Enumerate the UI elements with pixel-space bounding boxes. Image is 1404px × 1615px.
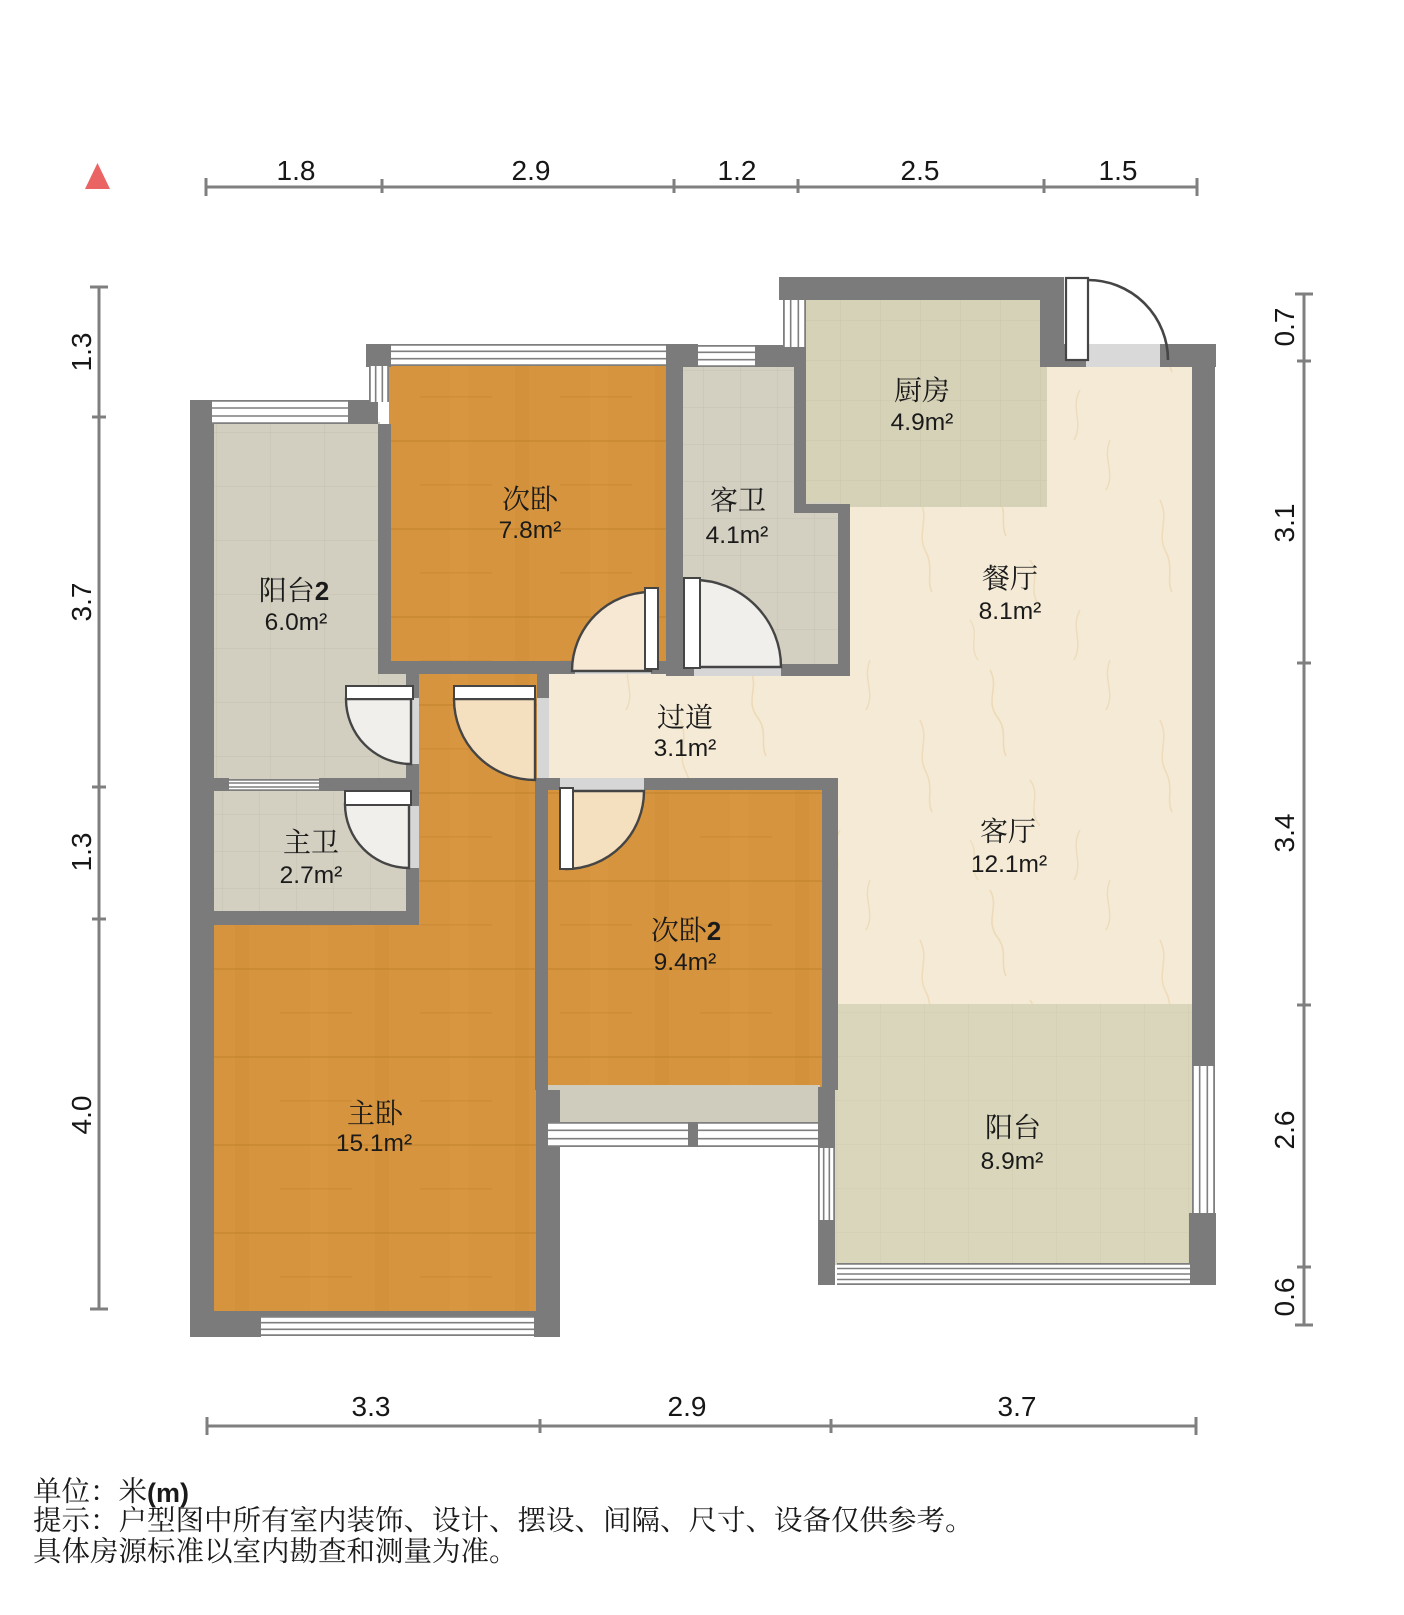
svg-text:4.0: 4.0 [66,1096,97,1135]
svg-text:3.4: 3.4 [1269,814,1300,853]
svg-text:2: 2 [707,916,721,946]
svg-text:1.3: 1.3 [66,833,97,872]
svg-text:2.9: 2.9 [512,155,551,186]
svg-text:1.8: 1.8 [277,155,316,186]
svg-text:2.5: 2.5 [901,155,940,186]
svg-text:0.7: 0.7 [1269,308,1300,347]
svg-text:7.8m²: 7.8m² [499,517,562,544]
svg-text:2.6: 2.6 [1269,1111,1300,1150]
svg-text:3.7: 3.7 [66,583,97,622]
svg-text:2: 2 [315,576,329,606]
svg-text:1.5: 1.5 [1099,155,1138,186]
svg-text:8.9m²: 8.9m² [981,1148,1044,1175]
svg-text:8.1m²: 8.1m² [979,598,1042,625]
svg-text:4.1m²: 4.1m² [706,522,769,549]
svg-text:6.0m²: 6.0m² [265,609,328,636]
svg-text:3.1m²: 3.1m² [654,735,717,762]
svg-text:(m): (m) [147,1478,189,1508]
svg-text:2.9: 2.9 [668,1391,707,1422]
svg-text:3.7: 3.7 [998,1391,1037,1422]
svg-text:1.3: 1.3 [66,333,97,372]
svg-text:12.1m²: 12.1m² [971,851,1047,878]
svg-text:0.6: 0.6 [1269,1278,1300,1317]
svg-text:3.3: 3.3 [352,1391,391,1422]
svg-text:2.7m²: 2.7m² [280,862,343,889]
svg-text:1.2: 1.2 [718,155,757,186]
svg-text:15.1m²: 15.1m² [336,1130,412,1157]
svg-text:3.1: 3.1 [1269,504,1300,543]
svg-text:4.9m²: 4.9m² [891,409,954,436]
svg-text:9.4m²: 9.4m² [654,949,717,976]
